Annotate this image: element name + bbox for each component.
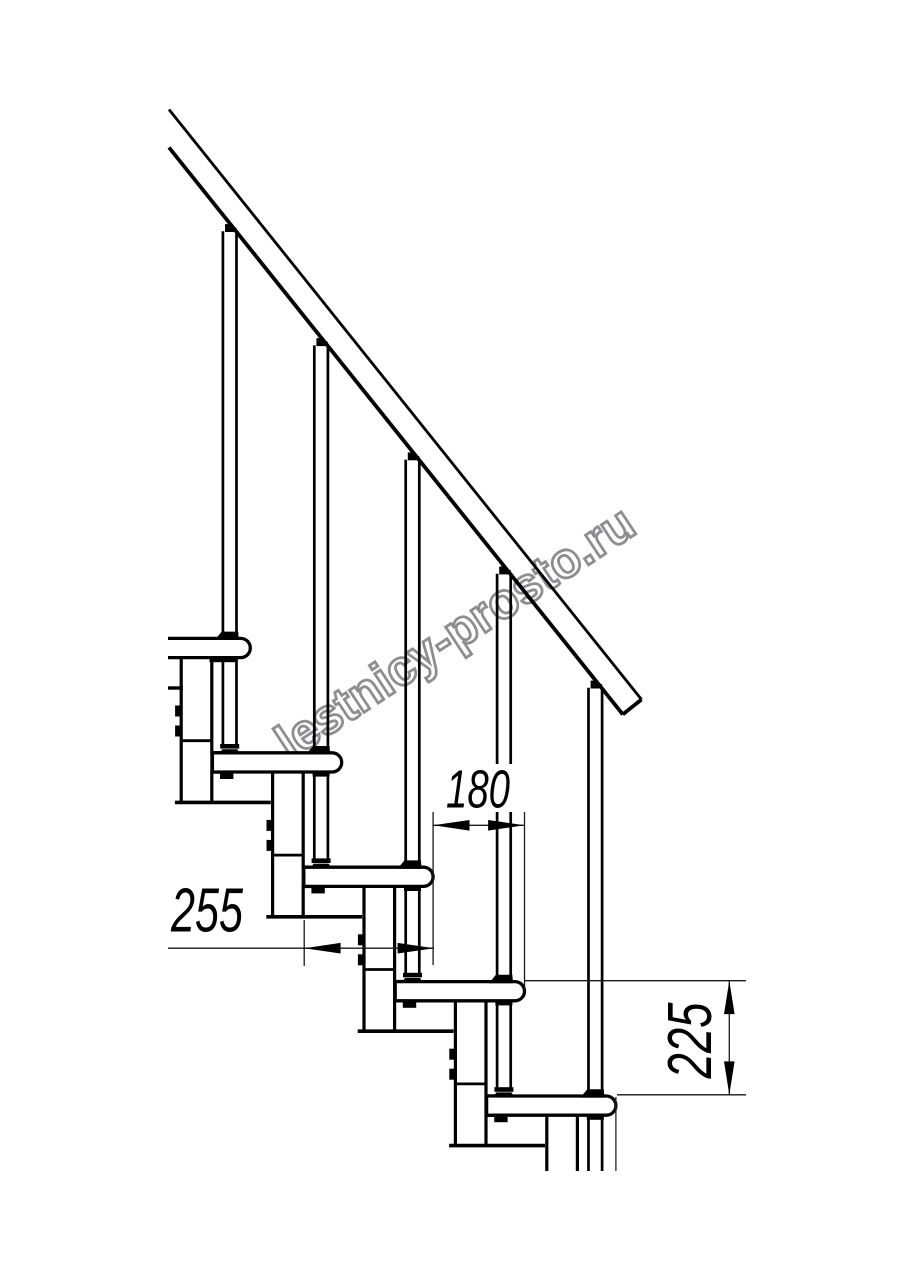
svg-text:225: 225 bbox=[656, 1002, 725, 1079]
svg-text:255: 255 bbox=[170, 877, 243, 946]
svg-text:180: 180 bbox=[446, 760, 510, 820]
